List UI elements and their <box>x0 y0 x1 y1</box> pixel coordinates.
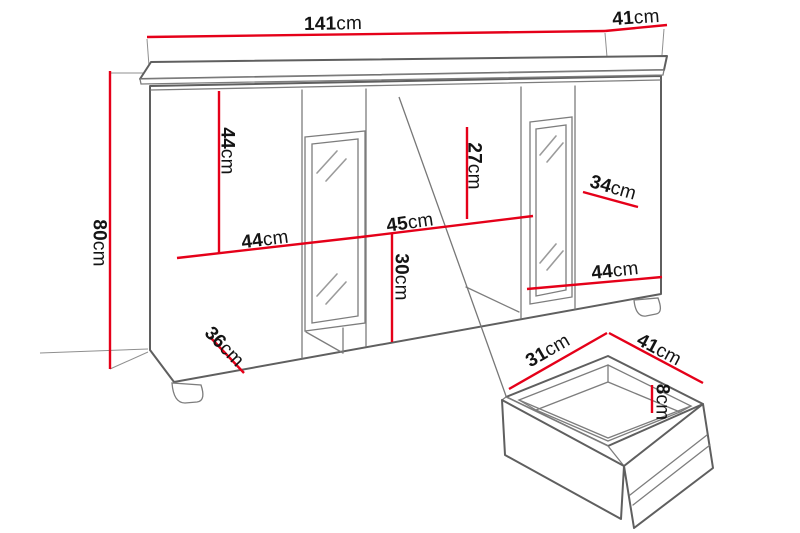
cabinet-foot-right <box>634 298 660 316</box>
extension-line <box>147 39 149 66</box>
extension-line <box>662 29 664 55</box>
dim-label-right-compartment-width: 44cm <box>590 259 639 283</box>
extension-line <box>605 33 607 57</box>
furniture-dimension-diagram: 141cm 41cm 80cm 44cm 44cm 27cm 45cm 30cm… <box>0 0 800 533</box>
dim-label-drawer-height: 8cm <box>653 384 672 421</box>
dim-line-cabinet-width <box>147 31 605 37</box>
dim-label-cabinet-width: 141cm <box>304 14 362 34</box>
dim-label-lower-compartment-height: 30cm <box>392 253 411 300</box>
dim-label-left-door-height: 44cm <box>218 127 237 174</box>
floor-line <box>40 349 148 353</box>
dim-label-upper-shelf-height: 27cm <box>465 142 484 189</box>
drawer-detail <box>502 356 713 528</box>
dim-label-cabinet-height: 80cm <box>90 219 109 266</box>
cabinet-foot-left <box>172 383 203 403</box>
glass-door-frame <box>305 131 365 331</box>
extension-line <box>110 352 148 369</box>
dim-label-cabinet-depth: 41cm <box>612 7 660 29</box>
right-glass-door <box>530 117 572 304</box>
